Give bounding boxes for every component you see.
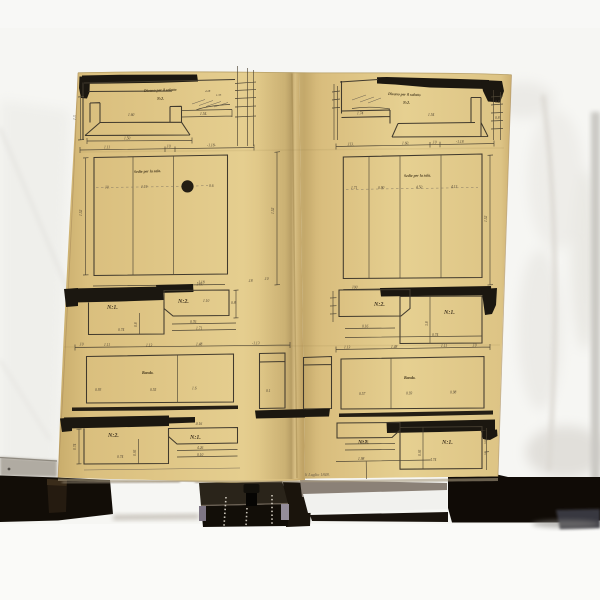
svg-text:N:2.: N:2. [107,433,119,439]
svg-text:.10: .10 [264,277,269,281]
svg-text:N:1.: N:1. [443,310,455,316]
svg-text:1.6: 1.6 [192,387,197,391]
svg-text:1.54.: 1.54. [200,112,207,116]
svg-text:1.71: 1.71 [351,186,357,190]
svg-text:0.16: 0.16 [362,440,368,444]
svg-text:0.16: 0.16 [362,325,368,329]
svg-text:N:2.: N:2. [156,97,164,101]
svg-text:1.11: 1.11 [104,146,110,150]
svg-text:1.10: 1.10 [203,299,209,303]
svg-text:4.74: 4.74 [430,458,436,462]
svg-text:1.71: 1.71 [196,327,202,331]
svg-text:4.26: 4.26 [197,446,203,450]
svg-text:N:2.: N:2. [177,299,189,305]
svg-text:.113.: .113. [347,143,354,147]
svg-text:1.52: 1.52 [79,210,83,216]
svg-text:1.13: 1.13 [344,346,350,350]
svg-text:1.52: 1.52 [271,208,275,214]
svg-text:N:2.: N:2. [373,302,385,308]
svg-text:1.3: 1.3 [73,115,77,120]
svg-text:-1.13: -1.13 [252,342,260,346]
svg-text:-1.18: -1.18 [456,140,464,144]
svg-text:.0.16: .0.16 [195,422,202,426]
svg-text:0.8: 0.8 [231,301,236,305]
svg-text:.10: .10 [79,343,84,347]
svg-text:N:1.: N:1. [441,440,453,446]
svg-text:N:1.: N:1. [106,305,118,311]
svg-text:Sedie per la sala.: Sedie per la sala. [404,174,431,178]
svg-text:4.28: 4.28 [205,89,211,93]
svg-text:N:1.: N:1. [189,435,201,441]
svg-text:0.76: 0.76 [190,320,196,324]
svg-text:0.8: 0.8 [495,116,500,120]
svg-text:1.60: 1.60 [128,113,134,117]
svg-text:0.93: 0.93 [95,388,101,392]
svg-text:0.74: 0.74 [432,333,438,337]
svg-text:1.48: 1.48 [196,343,202,347]
svg-text:1.19: 1.19 [141,185,147,189]
svg-text:0.1: 0.1 [266,389,271,393]
svg-text:0.57: 0.57 [359,392,365,396]
svg-text:1.13: 1.13 [146,344,152,348]
svg-text:li Luglio 1848.: li Luglio 1848. [305,472,330,477]
svg-text:0.90: 0.90 [378,186,384,190]
svg-text:1.54: 1.54 [428,113,434,117]
svg-text:1.52: 1.52 [484,216,488,222]
svg-text:.10.: .10. [166,145,171,149]
svg-text:0.6: 0.6 [209,184,214,188]
svg-text:1.60.: 1.60. [402,142,409,146]
svg-text:10.: 10. [105,186,110,190]
svg-text:.18: .18 [248,279,253,283]
svg-text:0.74: 0.74 [118,328,124,332]
svg-text:0.74: 0.74 [117,455,123,459]
svg-text:1.11: 1.11 [104,343,110,347]
svg-text:3.8: 3.8 [425,321,429,326]
svg-text:0.93: 0.93 [133,450,137,456]
svg-text:0.93: 0.93 [406,392,412,396]
svg-text:-1.18-: -1.18- [207,144,216,148]
svg-text:3: 3 [484,441,486,445]
svg-text:100: 100 [352,286,358,290]
svg-text:0.93: 0.93 [418,450,422,456]
svg-text:4.13: 4.13 [451,185,457,189]
svg-text:0.10: 0.10 [197,453,203,457]
svg-text:N:2.: N:2. [402,101,410,105]
svg-text:0.98: 0.98 [450,391,456,395]
svg-text:1.74: 1.74 [357,112,363,116]
svg-text:-1.18: -1.18 [197,281,205,285]
svg-text:Banda.: Banda. [403,376,416,380]
svg-text:.10: .10 [472,344,477,348]
svg-text:.10: .10 [432,141,437,145]
svg-text:1.35: 1.35 [216,93,222,97]
svg-text:0.55: 0.55 [150,388,156,392]
svg-text:1.98: 1.98 [358,457,364,461]
svg-text:0.8: 0.8 [134,322,138,327]
svg-text:3: 3 [484,452,486,456]
svg-text:1.50: 1.50 [124,137,130,141]
svg-text:Banda.: Banda. [141,371,154,375]
svg-text:1.11: 1.11 [441,344,447,348]
svg-text:4.50: 4.50 [416,185,422,189]
svg-text:0.74: 0.74 [73,444,77,450]
svg-text:1.48: 1.48 [391,345,397,349]
svg-text:0.8: 0.8 [495,100,500,104]
